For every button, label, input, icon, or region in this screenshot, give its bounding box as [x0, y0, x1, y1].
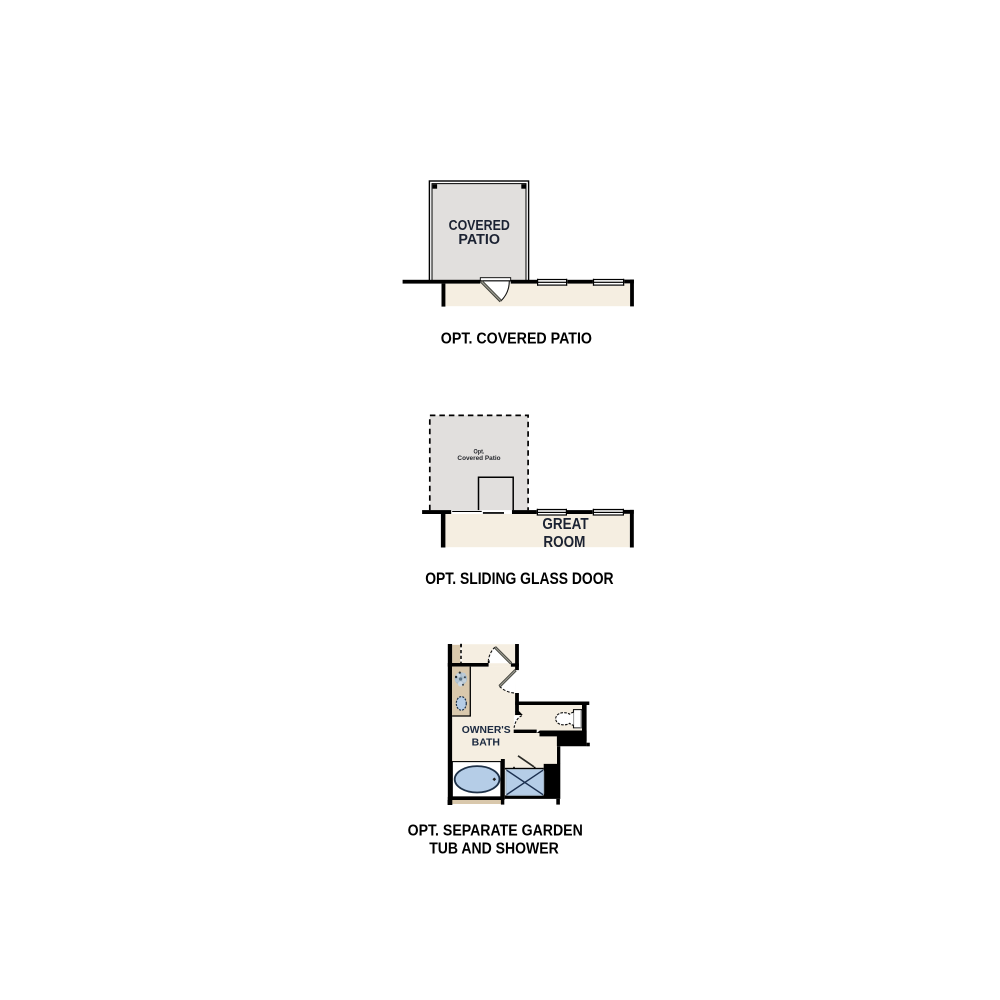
svg-text:PATIO: PATIO: [458, 232, 500, 248]
svg-text:BATH: BATH: [472, 737, 500, 748]
svg-text:TUB AND SHOWER: TUB AND SHOWER: [429, 840, 559, 857]
svg-text:OPT. COVERED PATIO: OPT. COVERED PATIO: [441, 331, 592, 348]
svg-text:OPT. SEPARATE GARDEN: OPT. SEPARATE GARDEN: [408, 822, 583, 839]
svg-text:GREAT: GREAT: [542, 516, 588, 533]
svg-text:Covered Patio: Covered Patio: [457, 455, 500, 462]
svg-text:OWNER'S: OWNER'S: [462, 725, 511, 736]
svg-text:OPT. SLIDING GLASS DOOR: OPT. SLIDING GLASS DOOR: [425, 570, 613, 588]
svg-text:ROOM: ROOM: [543, 534, 585, 551]
